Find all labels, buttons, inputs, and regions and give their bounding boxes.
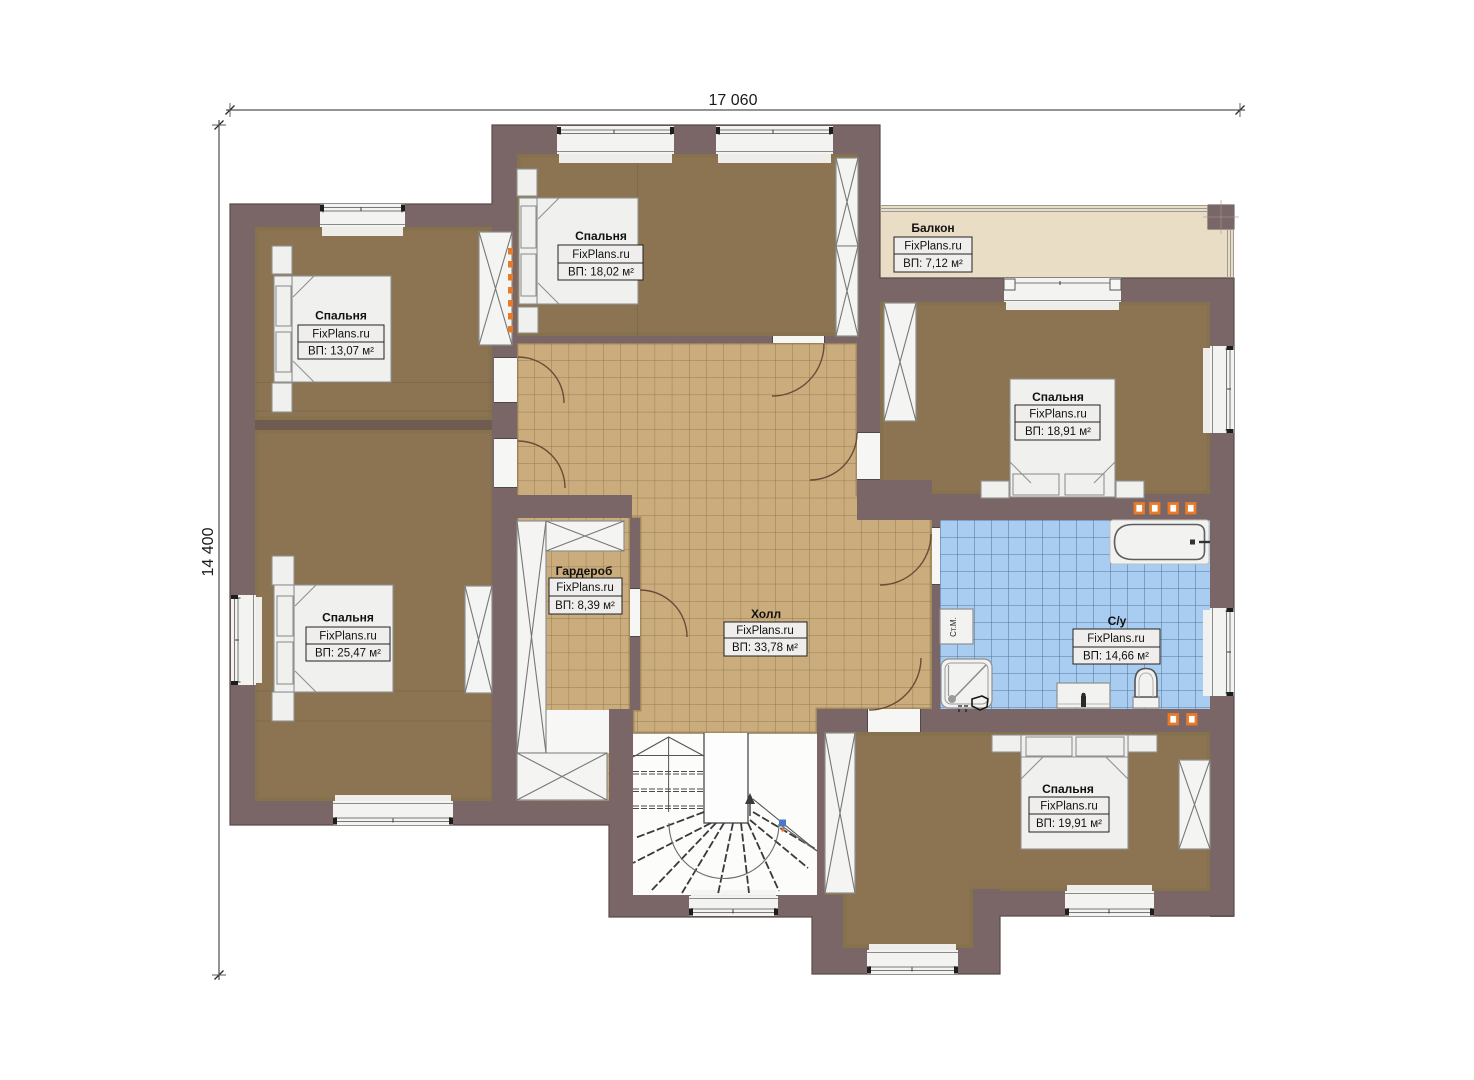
svg-text:FixPlans.ru: FixPlans.ru xyxy=(904,241,962,253)
svg-text:FixPlans.ru: FixPlans.ru xyxy=(556,582,614,594)
svg-text:FixPlans.ru: FixPlans.ru xyxy=(736,625,794,637)
svg-text:ВП: 14,66 м²: ВП: 14,66 м² xyxy=(1083,651,1149,663)
svg-text:ВП: 18,91 м²: ВП: 18,91 м² xyxy=(1025,426,1091,438)
svg-text:ВП: 33,78 м²: ВП: 33,78 м² xyxy=(732,642,798,654)
svg-text:Спальня: Спальня xyxy=(1042,782,1094,796)
svg-text:ВП: 19,91 м²: ВП: 19,91 м² xyxy=(1036,818,1102,830)
svg-text:ВП: 13,07 м²: ВП: 13,07 м² xyxy=(308,346,374,358)
svg-text:Спальня: Спальня xyxy=(575,229,627,243)
svg-text:FixPlans.ru: FixPlans.ru xyxy=(1087,633,1145,645)
svg-text:ВП: 7,12 м²: ВП: 7,12 м² xyxy=(903,258,963,270)
svg-text:FixPlans.ru: FixPlans.ru xyxy=(572,249,630,261)
svg-text:14 400: 14 400 xyxy=(200,527,217,576)
svg-text:Холл: Холл xyxy=(751,607,781,621)
svg-text:Спальня: Спальня xyxy=(315,309,367,323)
svg-text:17 060: 17 060 xyxy=(709,92,758,109)
svg-text:FixPlans.ru: FixPlans.ru xyxy=(319,631,377,643)
svg-text:ВП: 18,02 м²: ВП: 18,02 м² xyxy=(568,267,634,279)
svg-text:Спальня: Спальня xyxy=(1032,390,1084,404)
svg-text:Гардероб: Гардероб xyxy=(556,564,613,578)
svg-text:FixPlans.ru: FixPlans.ru xyxy=(1040,801,1098,813)
svg-text:FixPlans.ru: FixPlans.ru xyxy=(312,329,370,341)
svg-text:С/у: С/у xyxy=(1108,614,1127,628)
svg-text:ВП: 8,39 м²: ВП: 8,39 м² xyxy=(555,600,615,612)
svg-text:Балкон: Балкон xyxy=(911,221,954,235)
svg-text:FixPlans.ru: FixPlans.ru xyxy=(1029,409,1087,421)
svg-text:ВП: 25,47 м²: ВП: 25,47 м² xyxy=(315,648,381,660)
svg-text:Спальня: Спальня xyxy=(322,611,374,625)
svg-text:Ст.М.: Ст.М. xyxy=(949,617,958,637)
